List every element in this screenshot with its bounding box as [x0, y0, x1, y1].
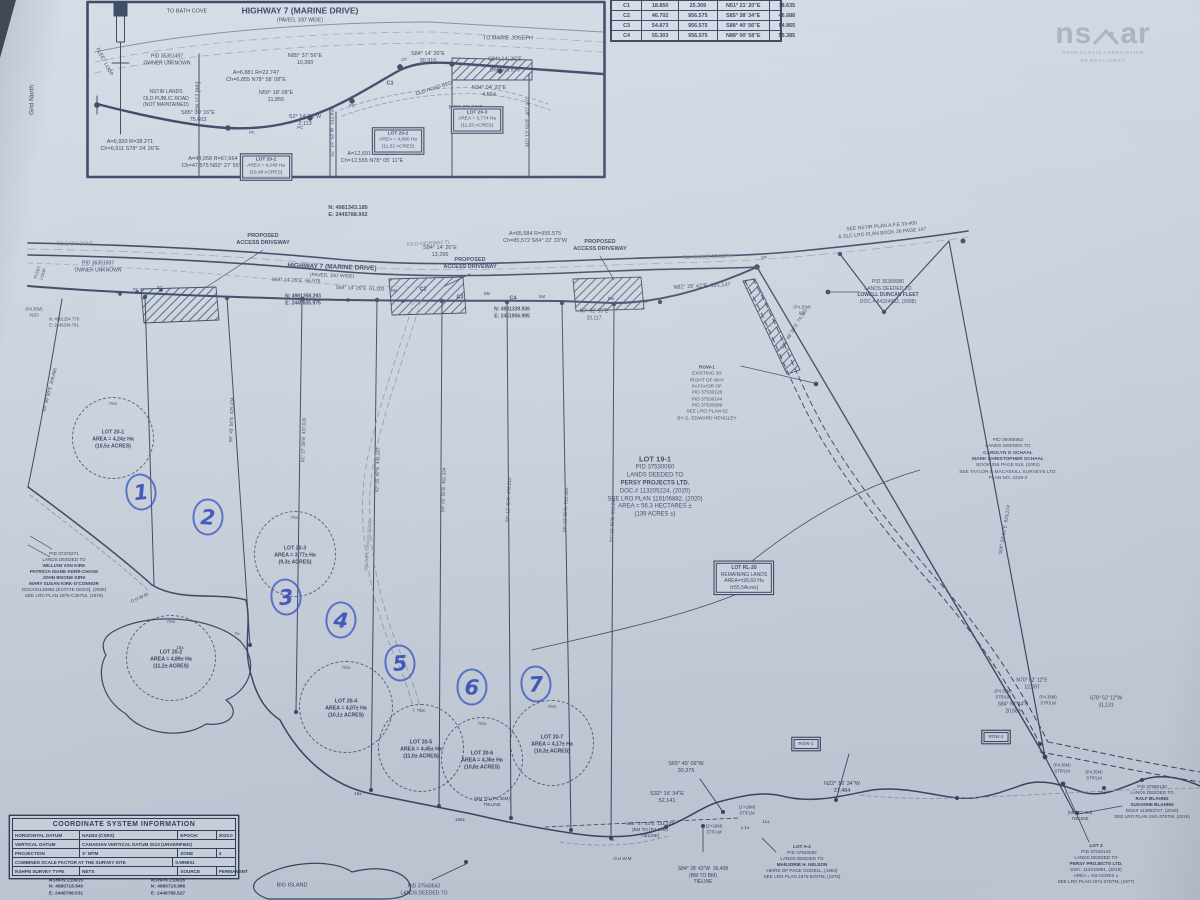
coord-table-cell: EPOCH: — [177, 831, 215, 839]
map-label: (P4.35M) STR/LM — [1039, 694, 1056, 705]
curve-table-cell: 55.385 — [769, 31, 804, 40]
map-label: BM — [608, 296, 614, 302]
curve-table-cell: C1 — [612, 1, 641, 10]
coord-table-cell: NETS — [79, 867, 177, 875]
curve-table-row: C455.303956.575N88° 00' 58"E55.385 — [612, 30, 780, 40]
map-label: BM — [391, 288, 397, 294]
coord-table-cell: SOURCE — [177, 867, 215, 875]
map-label: S0° 43' 54"E 429,234 — [228, 397, 236, 442]
map-label: N70° 52' 12"E 12,097 — [1016, 677, 1047, 690]
map-label: 11± — [762, 819, 769, 825]
map-label: N: 4981358.293 E: 2445835.975 — [285, 293, 321, 306]
map-label: NSTIR LANDS OLD PUBLIC ROAD (NOT MAINTAI… — [143, 89, 189, 109]
circle-radius-label: 75m — [417, 708, 426, 713]
map-label: A=6,920 R=38.271 Ch=6,911 S78° 24' 26"E — [100, 139, 159, 154]
row-1-note: ROW-1EXISTING 30'RIGHT OF WAYIN FAVOR OF… — [677, 366, 736, 423]
map-label: PC — [249, 130, 255, 136]
map-label: (1'×16M) ST/FLM — [739, 804, 756, 815]
curve-table-cell: N51° 21' 20"E — [717, 1, 769, 10]
map-label: N22° 16' 34"W 31,484 — [824, 781, 860, 796]
lot-area-circle: 75mLOT 20-1 AREA = 4,24± Ha (10,5± ACRES… — [72, 397, 154, 479]
inset-highway-title: HIGHWAY 7 (MARINE DRIVE) — [242, 5, 359, 16]
map-label: PID 36351697 OWNER UNKNOWN — [75, 260, 122, 273]
logo-subtitle-1: NOVA SCOTIA ASSOCIATION — [1028, 50, 1178, 55]
curve-table-row: C118.85025.309N51° 21' 20"E18.635 — [612, 1, 780, 10]
circle-radius-label: 75m — [478, 721, 487, 726]
lot-a-2-label: LOT A-2PID 37530052LANDS DEEDED TOMARJOR… — [764, 844, 841, 880]
inset-lot-20-1: LOT 20-1AREA = 4,240 Ha(10,48 ACRES) — [242, 156, 290, 179]
map-label: N: 4981339.936 E: 2451956.995 — [494, 306, 530, 319]
monument-coordinates: NSHPN 210915 N: 4980718.840 E: 2448768.5… — [49, 879, 83, 898]
pen-circled-number: 2 — [191, 497, 225, 536]
curve-table: C118.85025.309N51° 21' 20"E18.635C246.70… — [610, 0, 782, 42]
inset-lot-20-2: LOT 20-2AREA = 4,890 Ha(11,32 ACRES) — [374, 130, 422, 153]
kirk-parcel-label: PID 37376271LANDS DEEDED TOWILLIAM VAN K… — [22, 551, 106, 600]
map-label: S06° 23' 51"E 623,274 — [999, 505, 1014, 555]
circle-radius-label: 75m — [167, 619, 176, 624]
map-label: (2'×18M) ST/FLM — [706, 823, 723, 834]
map-label: N82° 25' 42"E 191,147 — [673, 282, 731, 292]
lot-area-text: LOT 20-7 AREA = 4,17± Ha (10,3± ACRES) — [531, 734, 572, 755]
circle-radius-label: 75m — [342, 665, 351, 670]
grid-north-label: Grid North — [29, 85, 38, 115]
pen-circled-number: 1 — [124, 472, 159, 512]
map-label: PC — [349, 103, 355, 109]
coord-table-cell: 3° MTM — [79, 849, 177, 857]
map-label: CP — [643, 299, 649, 305]
curve-table-cell: C3 — [612, 21, 641, 30]
map-label: S84° 14' 26"E 61,203 — [335, 285, 384, 293]
lot-area-text: LOT 20-1 AREA = 4,24± Ha (10,5± ACRES) — [92, 429, 133, 450]
nsar-logo: ns ar NOVA SCOTIA ASSOCIATION OF REALTOR… — [1028, 20, 1178, 63]
lot-area-text: LOT 20-4 AREA = 4,07± Ha (10,1± ACRES) — [325, 698, 366, 719]
lot-area-circle: 75mLOT 20-7 AREA = 4,17± Ha (10,3± ACRES… — [510, 700, 594, 786]
map-label: (P4.35M) STR/LM — [1085, 769, 1102, 780]
coord-table-cell: CANADIAN VERTICAL DATUM 2013 (UNVERIFIED… — [79, 840, 244, 848]
map-label: (P4.35M) 811 — [793, 304, 810, 315]
map-label: GP — [761, 255, 767, 261]
coord-table-title: COORDINATE SYSTEM INFORMATION — [13, 819, 235, 831]
map-label: PC — [157, 285, 163, 291]
map-label: HIGHWAY 7 (MARINE DRIVE) — [287, 262, 376, 274]
map-label: BM 69.576 — [490, 67, 520, 74]
map-label: OLD ROAD BED — [415, 80, 453, 98]
map-label: A=85,584 R=956.575 Ch=85,572 S84° 22' 33… — [503, 231, 567, 246]
curve-table-cell: 18.635 — [769, 1, 804, 10]
map-label: (5M TO 6M) TIELINE — [1068, 810, 1093, 822]
map-label: TO MARIE JOSEPH — [683, 254, 733, 263]
circle-radius-label: 75m — [548, 704, 557, 709]
map-label: S84° 14' 26"E 30,910 — [411, 51, 445, 66]
lot-area-text: LOT 20-2 AREA = 4,89± Ha (11,2± ACRES) — [150, 649, 191, 670]
map-label: S5° 09' 00"E 309,666 — [41, 367, 58, 412]
curve-table-cell: 956.575 — [678, 21, 717, 30]
lot-area-text: LOT 20-6 AREA = 4,36± Ha (10,8± ACRES) — [461, 750, 502, 771]
pen-circled-number: 5 — [383, 643, 417, 682]
coord-table-cell: NSHPN SURVEY TYPE — [13, 867, 79, 875]
pen-circled-number: 7 — [520, 665, 553, 704]
map-label: S6° 02' 55"E 512,165 — [562, 487, 570, 532]
curve-table-cell: 55.303 — [641, 31, 678, 40]
curve-table-cell: 18.850 — [641, 1, 678, 10]
map-label: C4 — [509, 295, 516, 302]
curve-table-cell: 54.873 — [641, 21, 678, 30]
monument-coordinates: NSHPN 210916 N: 4980718.986 E: 2448788.5… — [151, 879, 185, 898]
curve-table-cell: C4 — [612, 31, 641, 40]
circle-radius-label: 75m — [291, 515, 300, 520]
map-label: TO BATH COVE — [57, 242, 94, 249]
logo-text-ar: ar — [1120, 20, 1150, 47]
coord-table-row: COMBINED SCALE FACTOR AT THE SURVEY SITE… — [13, 857, 235, 866]
map-label: A=6,881 R=22.747 Ch=6,855 N78° 58' 08"E — [226, 70, 286, 85]
map-label: C3 — [456, 294, 463, 301]
map-label: PC — [116, 290, 122, 296]
map-label: S84° 14' 26"E — [488, 56, 522, 63]
map-label: S84° 28' 43"W 30,408 (BM TO BM) TIELINE — [678, 866, 728, 886]
coord-table-cell: 0.999931 — [172, 858, 244, 866]
coord-table-row: VERTICAL DATUMCANADIAN VERTICAL DATUM 20… — [13, 839, 235, 848]
coordinate-callout: N: 4981343.185 E: 2445788.902 — [328, 205, 367, 220]
map-label: S1° 27' 28"E 437,026 — [300, 417, 308, 462]
survey-plan-photo: TO BATH COVEHIGHWAY 7 (MARINE DRIVE)(PAV… — [0, 0, 1200, 900]
curve-table-cell: 956.575 — [678, 11, 717, 20]
inset-lot-20-3: LOT 20-3AREA = 3,774 Ha(11,33 ACRES) — [453, 109, 501, 132]
coord-table-cell: HORIZONTAL DATUM — [13, 831, 79, 839]
lot-3-label: LOT 3PID 37530144LANDS DEEDED TOPERSY PR… — [1058, 843, 1135, 885]
circle-radius-label: 75m — [109, 401, 118, 406]
map-label: N: 4981254.778 E: 2445334.781 — [49, 316, 79, 327]
lot-area-text: LOT 20-5 AREA = 4,45± Ha (11,0± ACRES) — [400, 739, 441, 760]
map-label: S84° 14' 26"E 13,295 — [423, 245, 457, 260]
map-label: (P4.35M) STR/LM — [994, 688, 1011, 699]
map-label: S2° 14' 53"W 2,113 — [289, 114, 321, 129]
map-label: S2° 55' 42"E 445,167 — [374, 447, 382, 492]
map-label: S65° 45' 09"W 30,375 — [668, 761, 703, 776]
map-label: S4° 02' 55"E 462,334 — [440, 467, 448, 512]
lot-rl-20-label: LOT RL-20REMAINING LANDSAREA=±26,60 Ha(±… — [716, 563, 772, 593]
logo-subtitle-2: OF REALTORS® — [1028, 58, 1178, 63]
map-label: CP — [401, 57, 407, 63]
map-label: S88° 37' 43"E 131,133 (BM TO (P4.35M) TI… — [626, 821, 674, 839]
map-label: A=48,058 R=67,664 Ch=47,575 N82° 27' 55"… — [182, 156, 245, 171]
map-label: C2 — [419, 286, 426, 293]
map-label: BM — [484, 291, 490, 297]
curve-table-cell: 46.688 — [769, 11, 804, 20]
map-label: 13± — [1098, 790, 1105, 796]
coord-table-row: HORIZONTAL DATUMNAD83 (CSRS)EPOCH:2010.0 — [13, 831, 235, 839]
map-label: N34° 04' 20"E 4,554 — [472, 85, 506, 100]
map-label: PC — [133, 287, 139, 293]
map-label: S32° 16' 34"E 52,141 — [650, 791, 684, 806]
map-label: O.H.W.M. — [130, 591, 150, 605]
coord-table-cell: PERMANENT — [216, 867, 254, 875]
coord-table-row: NSHPN SURVEY TYPENETSSOURCEPERMANENT — [13, 866, 235, 875]
map-label: TO BATH COVE — [167, 8, 207, 15]
curve-table-cell: S88° 40' 56"E — [717, 21, 769, 30]
map-label: N59° 18' 08"E 11,855 — [259, 90, 293, 105]
coord-table-cell: 2010.0 — [216, 831, 254, 839]
curve-table-cell: S85° 38' 34"E — [717, 11, 769, 20]
coord-table-row: PROJECTION3° MTMZONE4 — [13, 848, 235, 857]
coord-table-cell: 4 — [216, 849, 254, 857]
map-label: 28,117 [99'] — [195, 82, 202, 110]
map-label: A=12,691 R=47,608 Ch=12,555 N78° 05' 11"… — [341, 151, 403, 166]
map-label: S78° 52' 12"W 31,131 — [1090, 695, 1122, 708]
logo-text-ns: ns — [1055, 20, 1092, 47]
map-label: FLEET LOOP — [33, 265, 48, 281]
coord-table-cell: COMBINED SCALE FACTOR AT THE SURVEY SITE — [13, 858, 172, 866]
map-label: O.H.W.M. — [613, 856, 633, 862]
map-label: N7° 02' 55"E 20,117 — [580, 308, 608, 321]
map-label: PROPOSED ACCESS DRIVEWAY — [236, 233, 289, 248]
map-label: PROPOSED ACCESS DRIVEWAY — [573, 239, 626, 254]
house-roof-icon — [1093, 27, 1119, 45]
lot-area-circle: 75mLOT 20-2 AREA = 4,89± Ha (11,2± ACRES… — [126, 615, 216, 701]
map-label: S7° 02' 55"E 553,283 — [609, 497, 617, 542]
lowell-fleet-parcel-label: PID 35389080LANDS DEEDED TOLOWELL DUNCAN… — [857, 279, 918, 305]
curve-table-row: C246.702956.575S85° 38' 34"E46.688 — [612, 10, 780, 20]
pen-circled-number: 6 — [456, 668, 489, 707]
map-label: ROW-1 — [794, 739, 819, 749]
map-label: PID 37543543 LANDS DEEDED TO — [400, 883, 447, 896]
map-label: 165± — [455, 817, 465, 823]
coord-table-cell: PROJECTION — [13, 849, 79, 857]
map-label: (P4.35M) STR/LM — [1053, 762, 1070, 773]
map-label: ROW-2 — [984, 732, 1009, 742]
curve-table-cell: 46.702 — [641, 11, 678, 20]
map-label: 4± — [610, 837, 615, 843]
schaal-parcel-label: PID 35088952LANDS DEEDED TOCAROLYN G SCH… — [959, 438, 1056, 482]
map-label: S84° 14' 26"E 66,576 — [271, 277, 320, 285]
map-label: C1 — [386, 80, 393, 87]
coord-table-cell: VERTICAL DATUM — [13, 840, 79, 848]
coord-table-cell: ZONE — [177, 849, 215, 857]
map-label: BIG ISLAND — [277, 882, 308, 889]
map-label: S84° 53' 44"E 20,583 — [998, 701, 1029, 714]
map-label: S5° 12' 45"E 478,912 — [505, 477, 513, 522]
curve-table-cell: C2 — [612, 11, 641, 20]
map-label: PC — [297, 125, 303, 131]
map-label: N7° 12' 50"E 407,407 — [526, 97, 533, 146]
map-labels-layer: TO BATH COVEHIGHWAY 7 (MARINE DRIVE)(PAV… — [0, 0, 1200, 900]
curve-table-cell: N88° 00' 58"E — [717, 31, 769, 40]
lot-area-circle: 75mLOT 20-6 AREA = 4,36± Ha (10,8± ACRES… — [441, 717, 523, 801]
lot-area-text: LOT 20-3 AREA = 3,77± Ha (9,3± ACRES) — [274, 545, 315, 566]
map-label: (PAVED, 100' WIDE) — [277, 18, 323, 25]
lot-19-1-label: LOT 19-1PID 37530060LANDS DEEDED TOPERSY… — [607, 454, 702, 519]
map-label: TO MARIE JOSEPH — [483, 35, 533, 42]
map-label: BM — [539, 294, 545, 300]
map-label: N85° 37' 56"E 10,390 — [288, 53, 322, 68]
map-label: 16± — [354, 791, 361, 797]
nsar-logo-mark: ns ar — [1028, 20, 1178, 47]
map-label: (8M WIDE GRAVEL ROAD) — [363, 519, 373, 571]
curve-table-cell: 54.865 — [769, 21, 804, 30]
coord-table-cell: NAD83 (CSRS) — [79, 831, 177, 839]
coordinate-system-table: COORDINATE SYSTEM INFORMATION HORIZONTAL… — [12, 818, 236, 876]
curve-table-cell: 25.309 — [678, 1, 717, 10]
map-label: SEE NSTIR PLAN A.F.E 33-400 & SLC LRO PL… — [838, 220, 927, 241]
map-label: FLEET LOOP — [94, 47, 114, 77]
curve-table-cell: 956.575 — [678, 31, 717, 40]
map-label: (P4.35M) #153 — [25, 306, 42, 317]
pen-circled-number: 4 — [324, 600, 359, 640]
map-label: PID 35351497 OWNER UNKNOWN — [144, 53, 191, 66]
map-label: S85° 30' 16"E 75,603 — [181, 110, 215, 125]
map-label: 7± — [235, 631, 240, 637]
map-label: S2° 14' 53"W 312,620 — [330, 107, 337, 157]
map-label: 1.1± — [741, 825, 750, 831]
curve-table-row: C354.873956.575S88° 40' 56"E54.865 — [612, 20, 780, 30]
blahnn-parcel-label: PID 37595130LANDS DEEDED TORALF BLAHNNSU… — [1114, 784, 1190, 820]
